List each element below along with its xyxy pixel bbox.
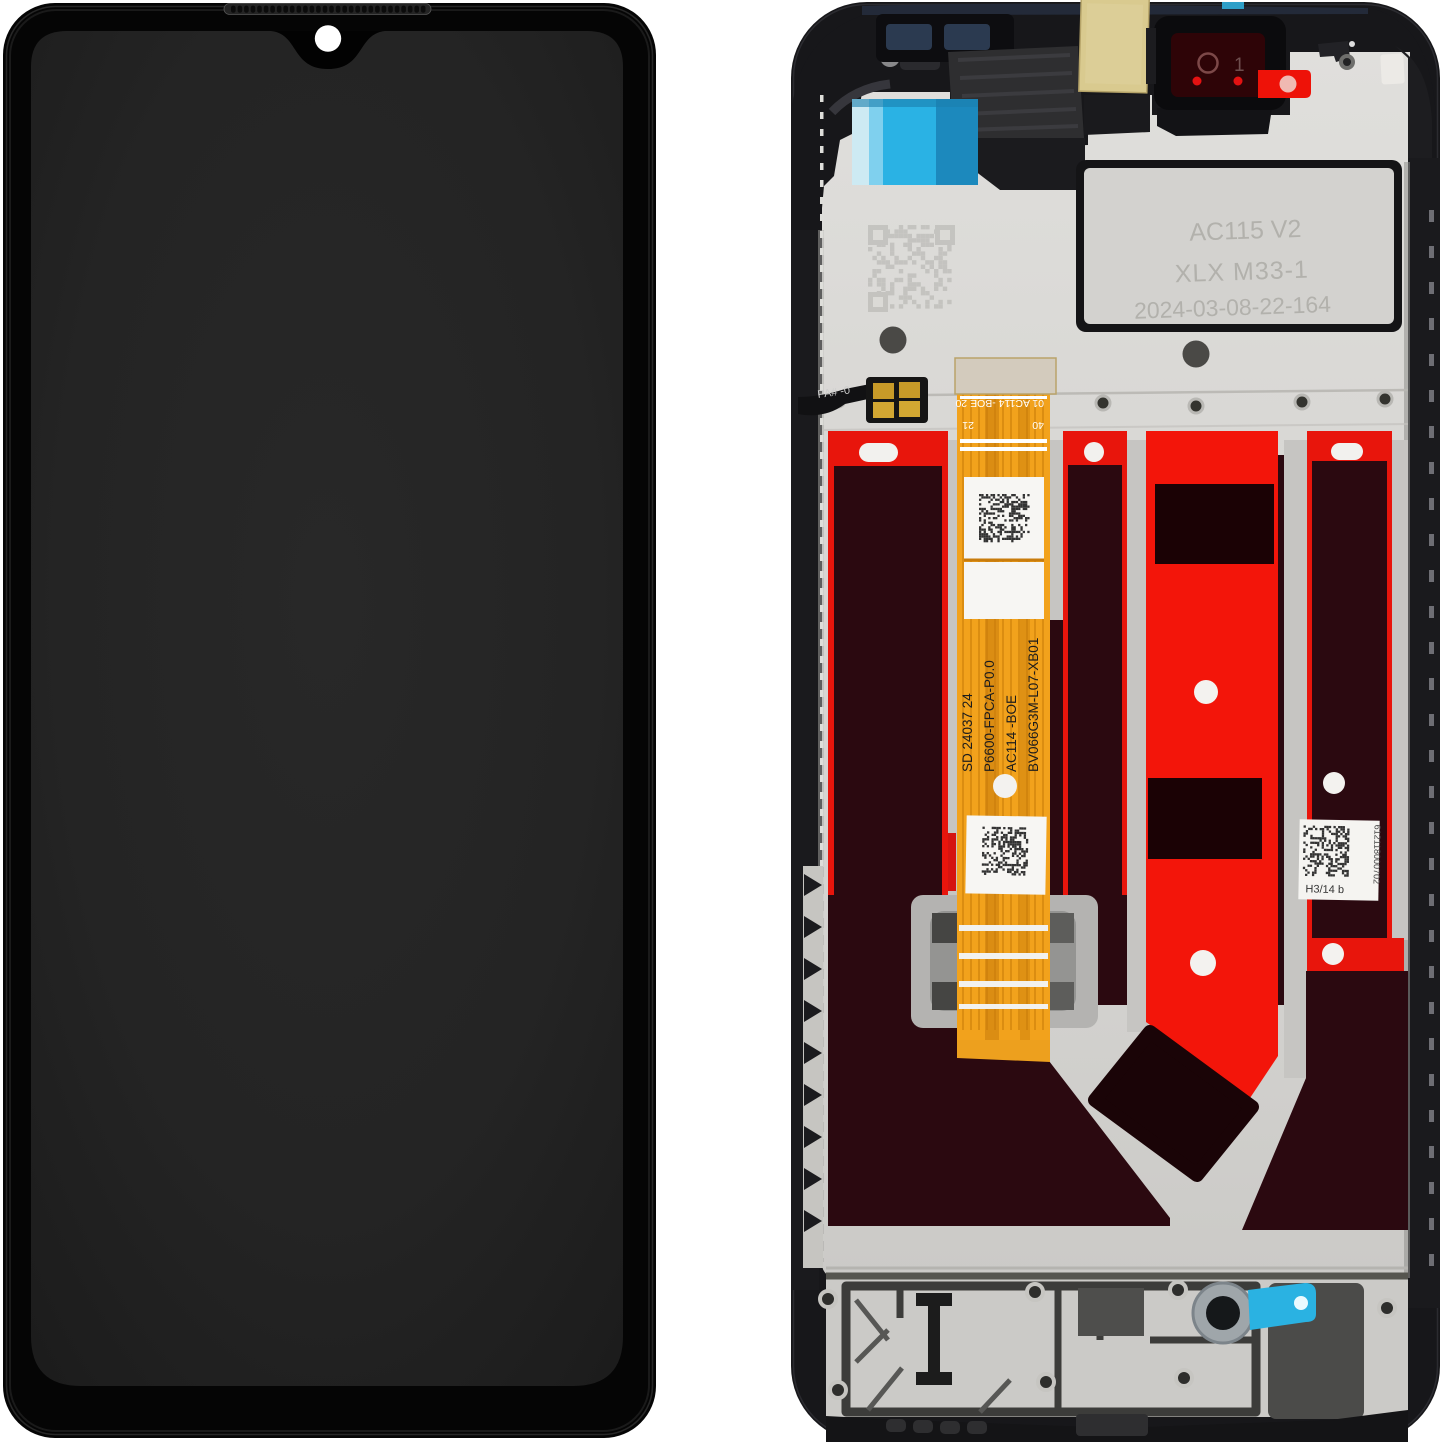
svg-text:40: 40 — [1032, 419, 1044, 431]
svg-text:XLX M33-1: XLX M33-1 — [1174, 256, 1309, 289]
svg-text:21: 21 — [962, 419, 974, 431]
svg-text:AC115 V2: AC115 V2 — [1189, 215, 1302, 247]
svg-text:AC114 -BOE: AC114 -BOE — [1004, 695, 1019, 772]
svg-text:P6600-FPCA-P0.0: P6600-FPCA-P0.0 — [982, 660, 997, 772]
svg-text:H3/14 b: H3/14 b — [1305, 883, 1344, 896]
svg-text:01 AC114 -BOE 20: 01 AC114 -BOE 20 — [955, 397, 1044, 409]
svg-text:SD 24037 24: SD 24037 24 — [960, 693, 975, 772]
svg-text:BV066G3M-L07-XB01: BV066G3M-L07-XB01 — [1026, 638, 1041, 772]
svg-text:612118000702: 612118000702 — [1372, 825, 1383, 885]
svg-text:1: 1 — [1234, 55, 1245, 76]
